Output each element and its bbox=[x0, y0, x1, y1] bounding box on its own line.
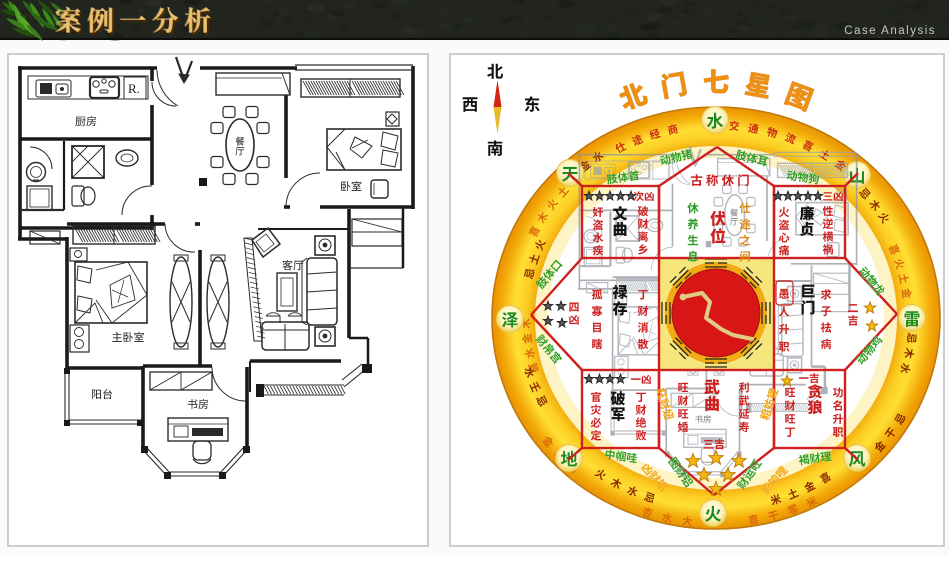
svg-text:R.: R. bbox=[128, 81, 140, 96]
svg-text:Case Analysis: Case Analysis bbox=[844, 25, 936, 37]
